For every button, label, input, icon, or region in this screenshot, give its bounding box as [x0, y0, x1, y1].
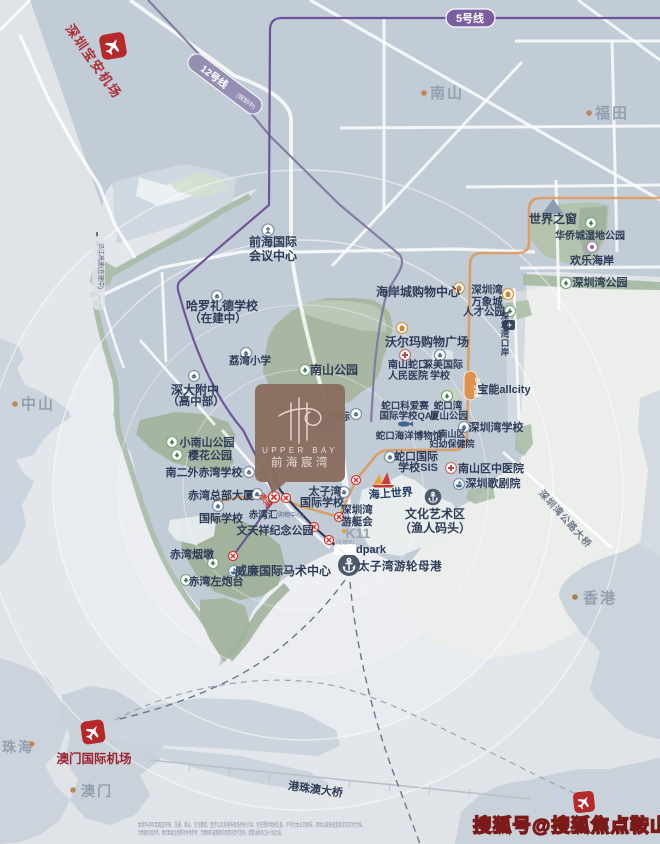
svg-text:珠海: 珠海 [2, 739, 34, 755]
svg-text:本资料对项目周边环境、交通、商业、文化教育、医疗以及其他市政: 本资料对项目周边环境、交通、商业、文化教育、医疗以及其他市政条件的介绍，旨在提供… [138, 821, 365, 829]
svg-text:南山公园: 南山公园 [310, 362, 358, 377]
svg-text:海岸城购物中心: 海岸城购物中心 [376, 284, 460, 299]
svg-text:深圳湾公园: 深圳湾公园 [573, 275, 628, 289]
svg-text:福田: 福田 [594, 104, 629, 122]
svg-text:K11: K11 [346, 525, 371, 541]
svg-text:UPPER BAY: UPPER BAY [262, 446, 338, 455]
svg-text:国际学校: 国际学校 [300, 495, 345, 509]
svg-text:学校: 学校 [430, 369, 451, 382]
svg-text:示意图仅供参考，图示距离比例等条件供参考，示意图中道路等实际: 示意图仅供参考，图示距离比例等条件供参考，示意图中道路等实际情况另行咨询，请置业… [138, 829, 284, 837]
svg-text:欢乐海岸: 欢乐海岸 [569, 253, 614, 267]
svg-text:(购物中心): (购物中心) [276, 511, 304, 519]
svg-text:中山: 中山 [21, 395, 55, 413]
svg-text:深美国际: 深美国际 [423, 358, 463, 371]
svg-text:深圳歌剧院: 深圳歌剧院 [466, 476, 521, 490]
svg-text:荔湾小学: 荔湾小学 [228, 354, 271, 367]
svg-text:会议中心: 会议中心 [249, 248, 297, 263]
svg-text:南山区: 南山区 [438, 428, 465, 439]
svg-text:前海宸湾: 前海宸湾 [271, 455, 331, 469]
svg-text:香港: 香港 [583, 589, 617, 607]
svg-text:赤湾烟墩: 赤湾烟墩 [170, 547, 215, 561]
svg-text:（在建中）: （在建中） [189, 311, 247, 325]
svg-text:哈罗礼德学校: 哈罗礼德学校 [186, 298, 259, 313]
svg-text:（渔人码头）: （渔人码头） [399, 520, 471, 535]
svg-text:学校SIS: 学校SIS [398, 460, 438, 474]
svg-text:澳门: 澳门 [81, 783, 113, 799]
svg-text:太子湾游轮母港: 太子湾游轮母港 [357, 559, 442, 573]
svg-text:南山区中医院: 南山区中医院 [458, 461, 524, 475]
svg-text:厦山公园: 厦山公园 [430, 410, 468, 422]
svg-text:(在建中): (在建中) [336, 539, 355, 546]
svg-text:赤湾汇: 赤湾汇 [249, 509, 278, 521]
svg-text:文天祥纪念公园: 文天祥纪念公园 [237, 523, 314, 537]
svg-text:华侨城湿地公园: 华侨城湿地公园 [555, 229, 625, 242]
svg-text:深圳湾口岸: 深圳湾口岸 [500, 311, 510, 357]
svg-text:沃尔玛购物广场: 沃尔玛购物广场 [385, 334, 469, 349]
svg-text:南二外赤湾学校: 南二外赤湾学校 [166, 465, 244, 479]
svg-text:国际学校: 国际学校 [199, 511, 244, 525]
svg-text:人才公园: 人才公园 [463, 305, 505, 318]
svg-text:人民医院: 人民医院 [388, 369, 428, 382]
svg-text:搜狐号@搜狐焦点鞍山站: 搜狐号@搜狐焦点鞍山站 [473, 815, 660, 836]
svg-text:太子湾: 太子湾 [308, 484, 342, 498]
svg-text:蛇口国际: 蛇口国际 [394, 449, 438, 463]
svg-text:赤湾总部大厦: 赤湾总部大厦 [188, 488, 255, 502]
svg-text:沿江高速(在建中): 沿江高速(在建中) [97, 243, 105, 289]
svg-text:5号线: 5号线 [456, 11, 484, 25]
svg-text:前海国际: 前海国际 [249, 234, 297, 249]
svg-text:世界之窗: 世界之窗 [529, 211, 577, 226]
svg-text:威廉国际马术中心: 威廉国际马术中心 [235, 563, 331, 578]
svg-text:南山蛇口: 南山蛇口 [388, 358, 428, 371]
svg-text:妇幼保健院: 妇幼保健院 [428, 438, 474, 449]
svg-text:南山: 南山 [430, 84, 464, 102]
svg-text:小南山公园: 小南山公园 [179, 435, 235, 449]
svg-text:文化艺术区: 文化艺术区 [405, 506, 465, 521]
svg-text:澳门国际机场: 澳门国际机场 [56, 751, 131, 766]
svg-text:dpark: dpark [356, 544, 387, 556]
svg-text:（高中部）: （高中部） [167, 394, 225, 408]
svg-text:樱花公园: 樱花公园 [188, 448, 232, 462]
svg-text:深圳湾学校: 深圳湾学校 [469, 420, 525, 434]
svg-text:宝能allcity: 宝能allcity [477, 382, 531, 396]
svg-text:深圳湾: 深圳湾 [471, 283, 503, 296]
svg-text:国际学校QAI: 国际学校QAI [380, 410, 435, 422]
svg-text:深大附中: 深大附中 [171, 382, 219, 397]
svg-text:深圳湾: 深圳湾 [341, 503, 373, 516]
